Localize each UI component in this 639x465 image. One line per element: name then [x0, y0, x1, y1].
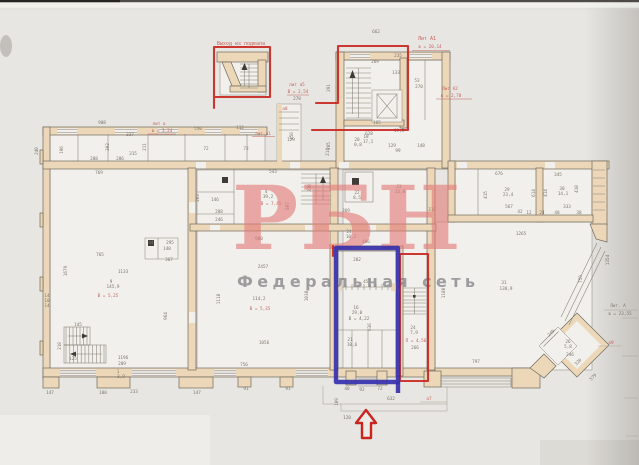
plan-label: 209: [118, 361, 126, 367]
plan-label: в = 20,14: [418, 44, 442, 50]
plan-label: 120: [343, 415, 351, 421]
plan-label: 100: [99, 390, 107, 396]
plan-label: 315: [129, 151, 137, 157]
plan-label: В = 4,22: [349, 316, 370, 322]
plan-label: 40: [554, 210, 560, 216]
plan-label: 246: [215, 217, 223, 223]
plan-label: 72: [203, 146, 209, 152]
plan-label: 1354: [605, 254, 611, 265]
plan-label: 240: [34, 147, 40, 155]
plan-label: 278: [293, 96, 301, 102]
plan-label: 288: [215, 209, 223, 215]
plan-label: а7: [426, 396, 432, 402]
plan-label: 205: [326, 142, 332, 150]
plan-label: Лит А1: [418, 36, 436, 42]
plan-label: 1118: [216, 293, 222, 304]
plan-label: 797: [472, 359, 480, 365]
plan-label: 140: [163, 246, 171, 252]
plan-label: лит а: [153, 122, 166, 127]
plan-label: 1056: [259, 340, 270, 346]
plan-label: 133: [392, 70, 400, 76]
floor-plan-drawing: Выход из подвала662Лит А1в = 20,14270Лит…: [0, 0, 639, 465]
plan-label: 456: [289, 132, 295, 140]
plan-label: 662: [372, 29, 380, 35]
plan-label: 7,9: [410, 330, 418, 336]
plan-label: Лит А2: [442, 86, 458, 92]
plan-label: 114,2: [253, 296, 266, 302]
paper-highlight: [0, 415, 210, 465]
plan-label: в = 2,78: [441, 93, 462, 99]
plan-label: 72: [377, 386, 383, 392]
floor-plan-photo: Выход из подвала662Лит А1в = 20,14270Лит…: [0, 0, 639, 465]
plan-label: 3,9: [117, 374, 125, 380]
plan-label: 24: [539, 210, 545, 216]
plan-label: 165: [373, 120, 381, 126]
plan-label: 138,9: [500, 286, 513, 292]
plan-label: 53: [414, 78, 420, 84]
plan-label: в = 23,55: [608, 311, 632, 317]
plan-label: 345: [554, 172, 562, 178]
plan-label: 614: [531, 189, 537, 197]
plan-label: 42: [517, 209, 523, 215]
plan-label: В = 5,35: [250, 306, 271, 312]
plan-label: 17,1: [363, 139, 374, 145]
plan-label: лит а5: [289, 82, 305, 88]
plan-label: 38: [576, 210, 582, 216]
plan-label: 1038: [304, 290, 310, 301]
plan-label: 550: [194, 126, 202, 132]
plan-label: 203: [195, 194, 201, 202]
plan-label: в = 3,24: [152, 128, 173, 134]
plan-label: 286: [116, 156, 124, 162]
plan-label: 756: [240, 362, 248, 368]
plan-label: В = 2,54: [288, 89, 309, 95]
plan-label: 1196: [118, 355, 129, 361]
plan-label: 418: [574, 185, 580, 193]
plan-label: 567: [505, 204, 513, 210]
plan-label: 125: [69, 356, 77, 362]
plan-label: 31: [501, 280, 507, 286]
plan-label: 129: [388, 143, 396, 149]
plan-label: 145,9: [107, 284, 120, 290]
plan-label: 29,0: [352, 310, 363, 316]
plan-label: 291: [326, 84, 332, 92]
plan-label: 92: [359, 387, 365, 393]
plan-label: лит.а1: [255, 131, 271, 137]
plan-label: 908: [98, 120, 106, 126]
plan-label: 233: [130, 389, 138, 395]
plan-label: 769: [95, 170, 103, 176]
plan-label: 196: [59, 146, 65, 154]
plan-label: 211: [142, 143, 148, 151]
plan-label: П = 4,56: [406, 338, 427, 344]
plan-label: 337: [126, 132, 134, 138]
plan-label: 112: [236, 125, 244, 131]
plan-label: 145: [74, 322, 82, 328]
plan-label: 44: [148, 240, 154, 246]
plan-label: 414: [543, 189, 549, 197]
plan-label: 91: [285, 386, 291, 392]
plan-label: 1133: [118, 269, 129, 275]
plan-label: 73: [243, 146, 249, 152]
watermark-subtitle: Федеральная сеть: [237, 272, 479, 291]
plan-label: 269: [371, 59, 379, 65]
plan-label: 12: [526, 210, 532, 216]
plan-label: 1265: [516, 231, 527, 237]
plan-label: 765: [96, 252, 104, 258]
plan-label: 40: [344, 386, 350, 392]
plan-label: 333: [563, 204, 571, 210]
plan-label: 266: [411, 345, 419, 351]
plan-label: 109: [334, 398, 340, 406]
plan-label: 270: [415, 84, 423, 90]
plan-label: В = 5,25: [98, 293, 119, 299]
plan-label: 964: [163, 312, 169, 320]
plan-label: 147: [46, 390, 54, 396]
plan-label: 91: [243, 386, 249, 392]
plan-label: 1679: [63, 265, 69, 276]
plan-label: 0,8: [354, 142, 362, 148]
plan-label: а9: [608, 340, 614, 346]
plan-label: 23,4: [503, 192, 514, 198]
plan-label: 99: [395, 148, 401, 154]
plan-label: 5,8: [564, 344, 572, 350]
plan-label: а8: [282, 106, 288, 112]
plan-label: Лит. А: [610, 303, 626, 309]
plan-label: 632: [387, 396, 395, 402]
plan-label: 147: [193, 390, 201, 396]
plan-label: 367: [165, 257, 173, 263]
plan-label: 302: [105, 143, 111, 151]
watermark: РБН Федеральная сеть: [232, 166, 479, 291]
plan-label: 14: [44, 303, 50, 309]
plan-label: 235: [394, 53, 402, 59]
plan-label: 295: [166, 240, 174, 246]
plan-label: 146: [211, 197, 219, 203]
plan-label: 636: [367, 323, 373, 331]
plan-label: 10,6: [347, 342, 358, 348]
paper-smudge: [0, 35, 12, 57]
plan-label: 676: [495, 171, 503, 177]
plan-label: 759: [578, 275, 584, 283]
plan-label: 14,1: [558, 191, 569, 197]
plan-label: 628: [365, 131, 373, 137]
plan-label: 148: [417, 143, 425, 149]
plan-label: 415: [483, 191, 489, 199]
plan-label: 288: [90, 156, 98, 162]
plan-label: 246: [566, 352, 574, 358]
plan-label: 218: [57, 342, 63, 350]
